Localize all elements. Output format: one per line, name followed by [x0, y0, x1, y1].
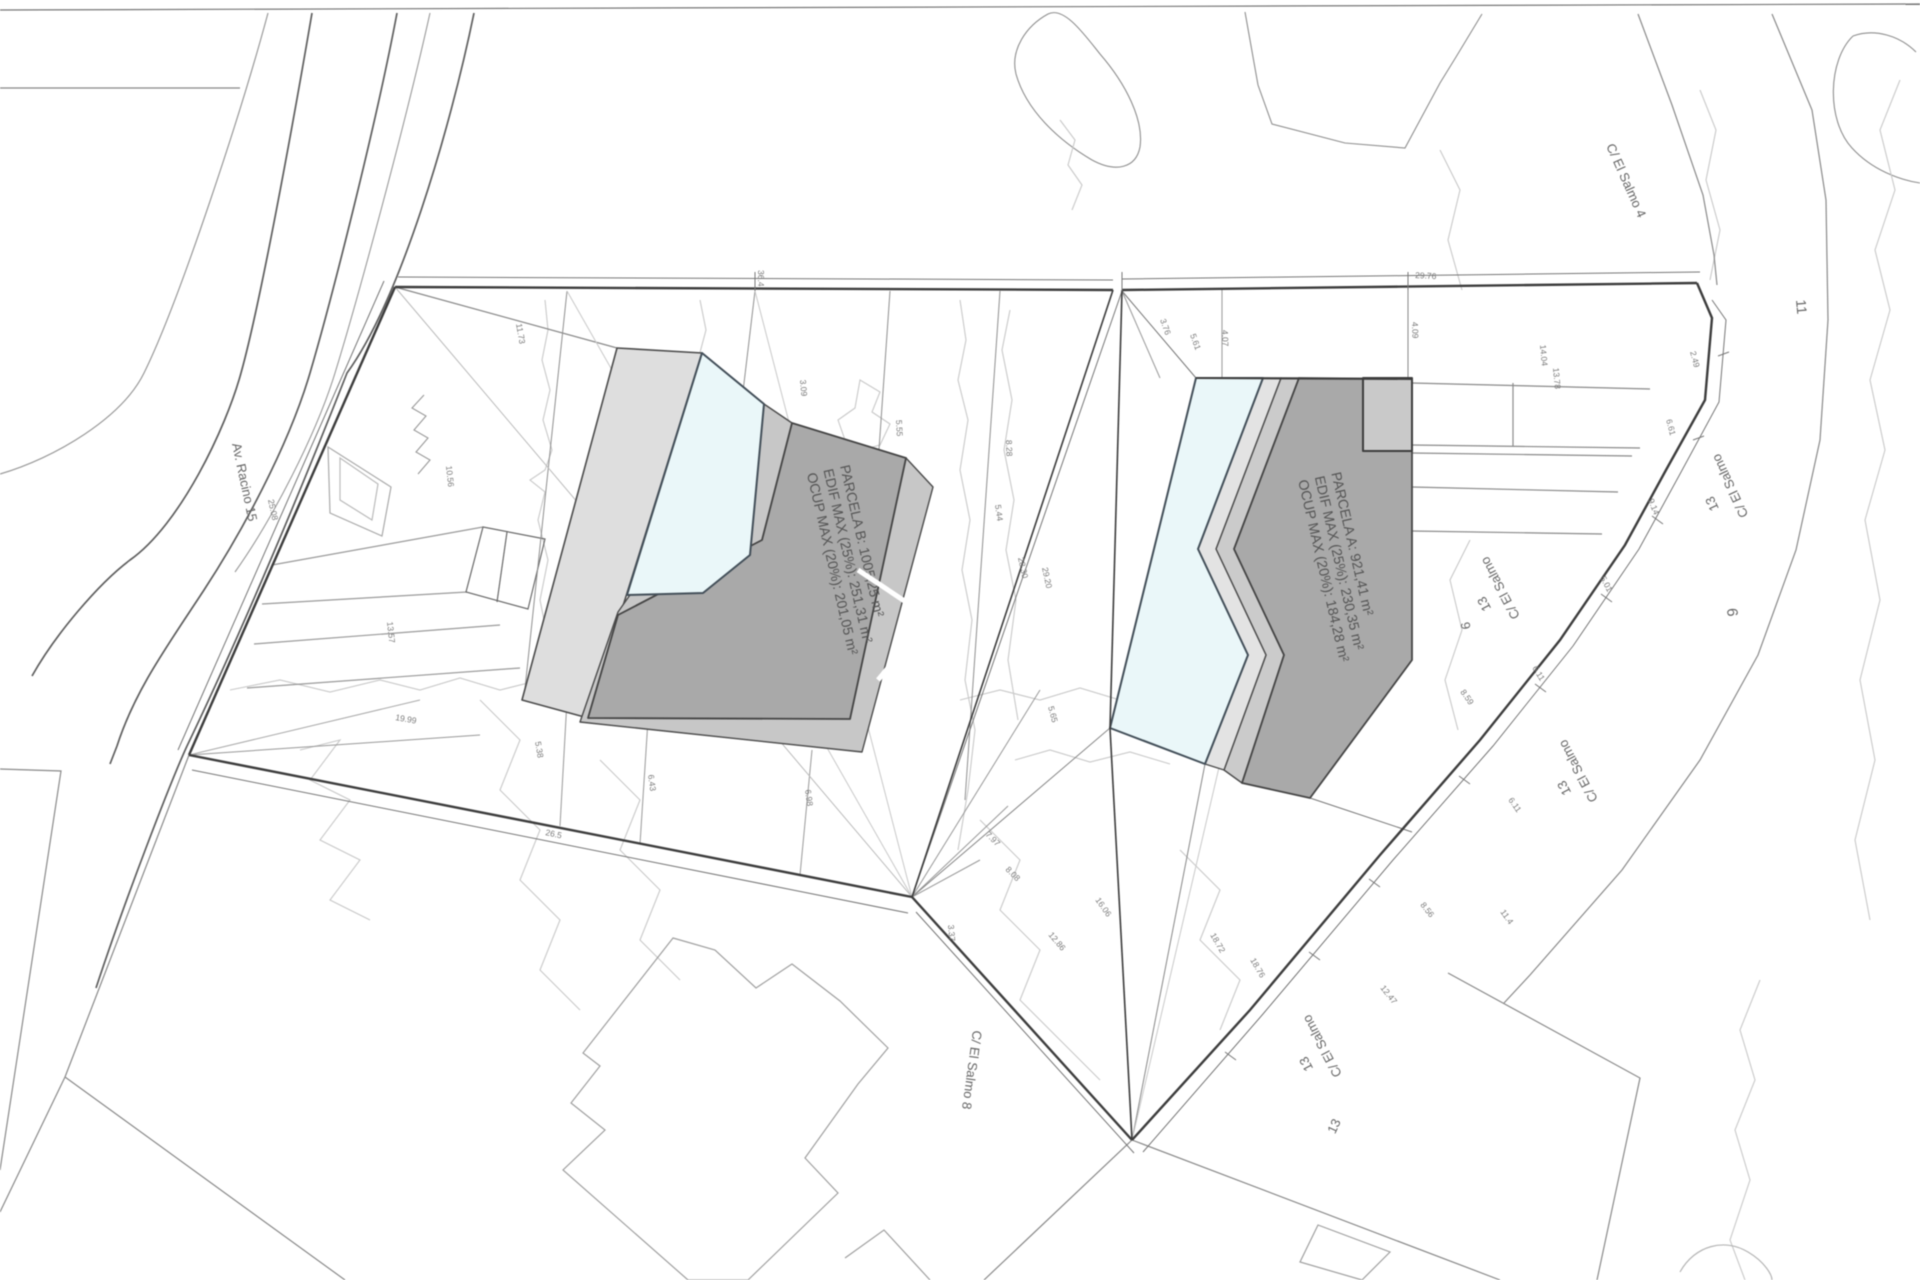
svg-text:3.09: 3.09 — [798, 379, 809, 397]
svg-text:3.37: 3.37 — [946, 924, 957, 942]
svg-text:13.78: 13.78 — [1551, 367, 1563, 389]
svg-text:11: 11 — [1793, 299, 1810, 315]
svg-text:36.4: 36.4 — [756, 270, 766, 287]
svg-text:9: 9 — [1724, 607, 1742, 617]
svg-text:14.04: 14.04 — [1538, 344, 1550, 366]
svg-text:4.07: 4.07 — [1220, 330, 1231, 347]
svg-text:4.09: 4.09 — [1410, 322, 1421, 339]
svg-text:5.55: 5.55 — [894, 420, 905, 437]
svg-text:29.76: 29.76 — [1415, 270, 1437, 281]
svg-text:8.28: 8.28 — [1004, 440, 1015, 457]
